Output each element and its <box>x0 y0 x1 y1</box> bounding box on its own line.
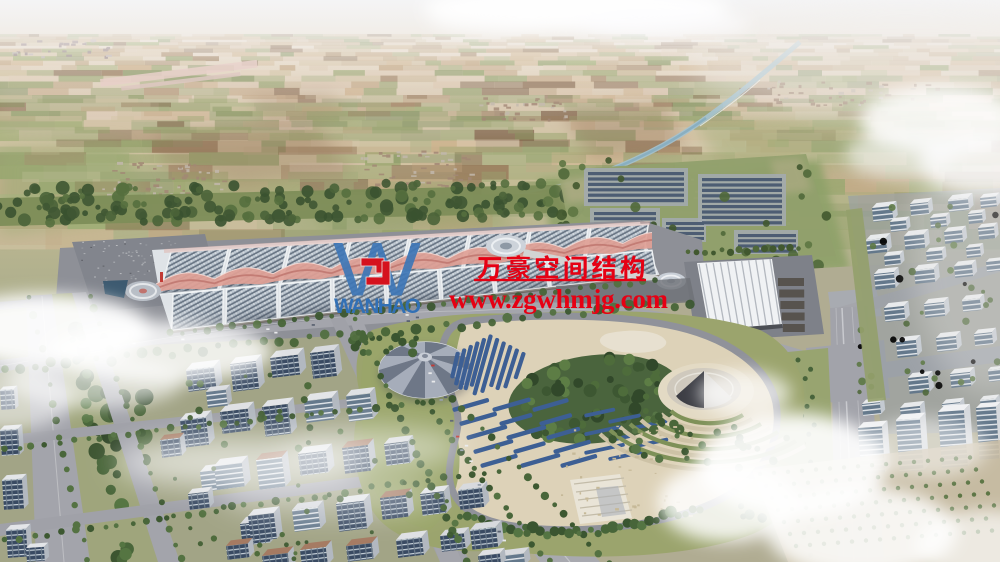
svg-text:www.zgwhmjg.com: www.zgwhmjg.com <box>449 284 669 314</box>
svg-text:WANHAO: WANHAO <box>334 295 421 318</box>
